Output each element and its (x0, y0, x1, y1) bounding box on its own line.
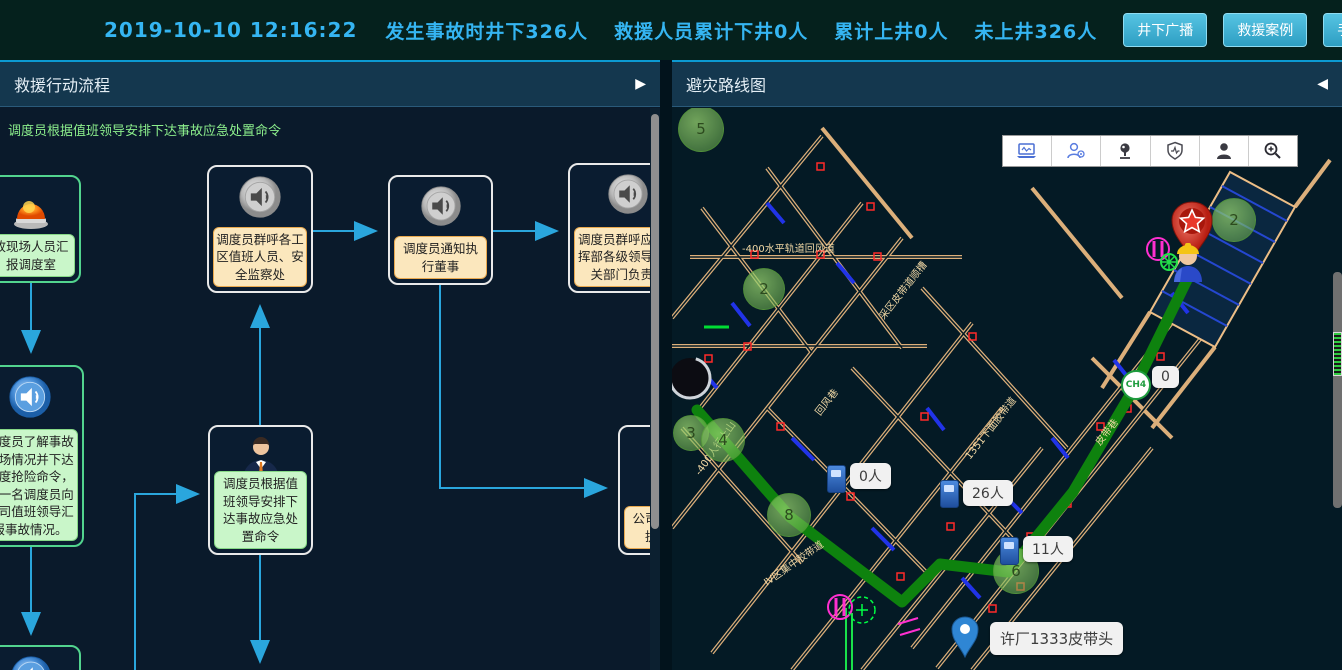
reader-device-icon (1000, 537, 1019, 565)
rescue-flow-panel: 救援行动流程 ▶ 调度员根据值班领导安排下达事故应急处置命令 (0, 60, 660, 670)
zone-count: 2 (759, 280, 769, 298)
flow-box-dispatch-order[interactable]: 调度员根据值班领导安排下达事故应急处置命令 (208, 425, 313, 555)
map-zoom-scrollbar[interactable] (1333, 272, 1342, 508)
tunnel-label: 1351下面胶带道 (962, 394, 1019, 461)
tunnel-label: -400水平轨道回风道 (742, 242, 835, 255)
people-count: 0人 (859, 469, 882, 485)
flow-box-label: 调度员群呼应急指挥部各级领导及相关部门负责人 (574, 227, 660, 288)
stat-underground-at-accident: 发生事故时井下326人 (385, 17, 588, 44)
monitor-icon[interactable] (1003, 136, 1052, 166)
location-label: 许厂1333皮带头 (1000, 630, 1113, 648)
flow-box-label: 调度员根据值班领导安排下达事故应急处置命令 (214, 471, 307, 549)
zone-count: 3 (686, 424, 696, 442)
people-count-bubble: 0人 (850, 463, 891, 489)
zone-circle: 2 (1212, 198, 1256, 242)
people-count-bubble: 26人 (963, 480, 1013, 506)
flow-scrollbar-track[interactable] (650, 108, 660, 670)
top-status-bar: 2019-10-10 12:16:22 发生事故时井下326人 救援人员累计下井… (0, 0, 1342, 60)
zone-count: 8 (784, 506, 794, 524)
flow-box-notify-director[interactable]: 调度员通知执行董事 (388, 175, 493, 285)
speaker-blue-icon (0, 375, 82, 419)
flow-box-group-call-hq[interactable]: 调度员群呼应急指挥部各级领导及相关部门负责人 (568, 163, 660, 293)
zoom-in-icon[interactable] (1249, 136, 1297, 166)
location-label-bubble: 许厂1333皮带头 (990, 622, 1123, 655)
tunnel-label: IV区集中胶带道 (761, 538, 826, 589)
collapse-right-icon[interactable]: ▶ (635, 76, 646, 92)
user-settings-icon[interactable] (1052, 136, 1101, 166)
speaker-blue-icon (0, 655, 79, 670)
zone-count: 2 (1229, 211, 1239, 229)
zone-circle: 2 (743, 268, 785, 310)
stat-total-up: 累计上井0人 (834, 17, 948, 44)
speaker-icon (390, 185, 491, 227)
speaker-icon (570, 173, 660, 215)
ch4-label: CH4 (1126, 380, 1146, 390)
zone-count: 5 (696, 120, 706, 138)
camera-icon[interactable] (1101, 136, 1150, 166)
reader-device-icon (940, 480, 959, 508)
stat-not-up: 未上井326人 (975, 17, 1098, 44)
underground-broadcast-button[interactable]: 井下广播 (1123, 13, 1207, 47)
reader-device-icon (827, 465, 846, 493)
collapse-left-icon[interactable]: ◀ (1317, 76, 1328, 92)
flowchart-area: 调度员根据值班领导安排下达事故应急处置命令 (0, 108, 660, 670)
zone-circle: 8 (767, 493, 811, 537)
map-zoom-ticks[interactable] (1333, 332, 1342, 376)
flow-box-label: 调度员了解事故现场情况并下达调度抢险命令，另一名调度员向公司值班领导汇报事故情况… (0, 429, 78, 541)
flow-box-label: 调度员群呼各工区值班人员、安全监察处 (213, 227, 307, 288)
flow-box-site-report[interactable]: 故现场人员汇报调度室 (0, 175, 81, 283)
zone-count: 4 (718, 431, 728, 449)
destination-pin-icon (951, 616, 979, 662)
speaker-icon (209, 175, 311, 219)
zone-circle: 4 (701, 418, 745, 462)
ch4-sensor-icon: CH4 (1121, 370, 1151, 400)
miner-avatar-icon (1168, 240, 1208, 288)
people-count: 26人 (972, 486, 1004, 502)
ch4-value-bubble: 0 (1152, 366, 1179, 388)
stat-rescuers-down: 救援人员累计下井0人 (614, 17, 808, 44)
escape-route-header: 避灾路线图 ◀ (672, 62, 1342, 107)
flow-box-label: 调度员通知执行董事 (394, 236, 487, 279)
map-toolbar (1002, 135, 1298, 167)
person-icon[interactable] (1200, 136, 1249, 166)
rescue-flow-title: 救援行动流程 (14, 72, 110, 96)
people-count-bubble: 11人 (1023, 536, 1073, 562)
rescue-flow-header: 救援行动流程 ▶ (0, 62, 660, 107)
people-count: 11人 (1032, 542, 1064, 558)
emergency-dashboard: 2019-10-10 12:16:22 发生事故时井下326人 救援人员累计下井… (0, 0, 1342, 670)
shield-icon[interactable] (1151, 136, 1200, 166)
datetime-display: 2019-10-10 12:16:22 (104, 18, 357, 42)
flow-notice-text: 调度员根据值班领导安排下达事故应急处置命令 (8, 120, 281, 139)
flow-box-label: 故现场人员汇报调度室 (0, 234, 75, 277)
mine-map[interactable]: -400水平轨道回风道 IV区集中胶带道 -400人行上山 采区皮带道顺槽 13… (672, 108, 1342, 670)
flow-scrollbar-thumb[interactable] (651, 114, 659, 529)
escape-route-panel: 避灾路线图 ◀ (672, 60, 1342, 670)
ch4-value: 0 (1161, 369, 1170, 385)
flow-box-bottom[interactable] (0, 645, 81, 670)
flow-box-group-call-workzones[interactable]: 调度员群呼各工区值班人员、安全监察处 (207, 165, 313, 293)
escape-route-title: 避灾路线图 (686, 72, 766, 96)
zone-circle: 5 (678, 108, 724, 152)
flow-box-understand-situation[interactable]: 调度员了解事故现场情况并下达调度抢险命令，另一名调度员向公司值班领导汇报事故情况… (0, 365, 84, 547)
flow-connectors (0, 108, 660, 670)
alarm-icon (0, 185, 79, 231)
tunnel-label: 回风巷 (813, 387, 841, 418)
escape-route-line (697, 280, 1187, 602)
rescue-cases-button[interactable]: 救援案例 (1223, 13, 1307, 47)
header-buttons: 井下广播 救援案例 手动模式 (1123, 13, 1342, 47)
manual-mode-button[interactable]: 手动模式 (1323, 13, 1342, 47)
